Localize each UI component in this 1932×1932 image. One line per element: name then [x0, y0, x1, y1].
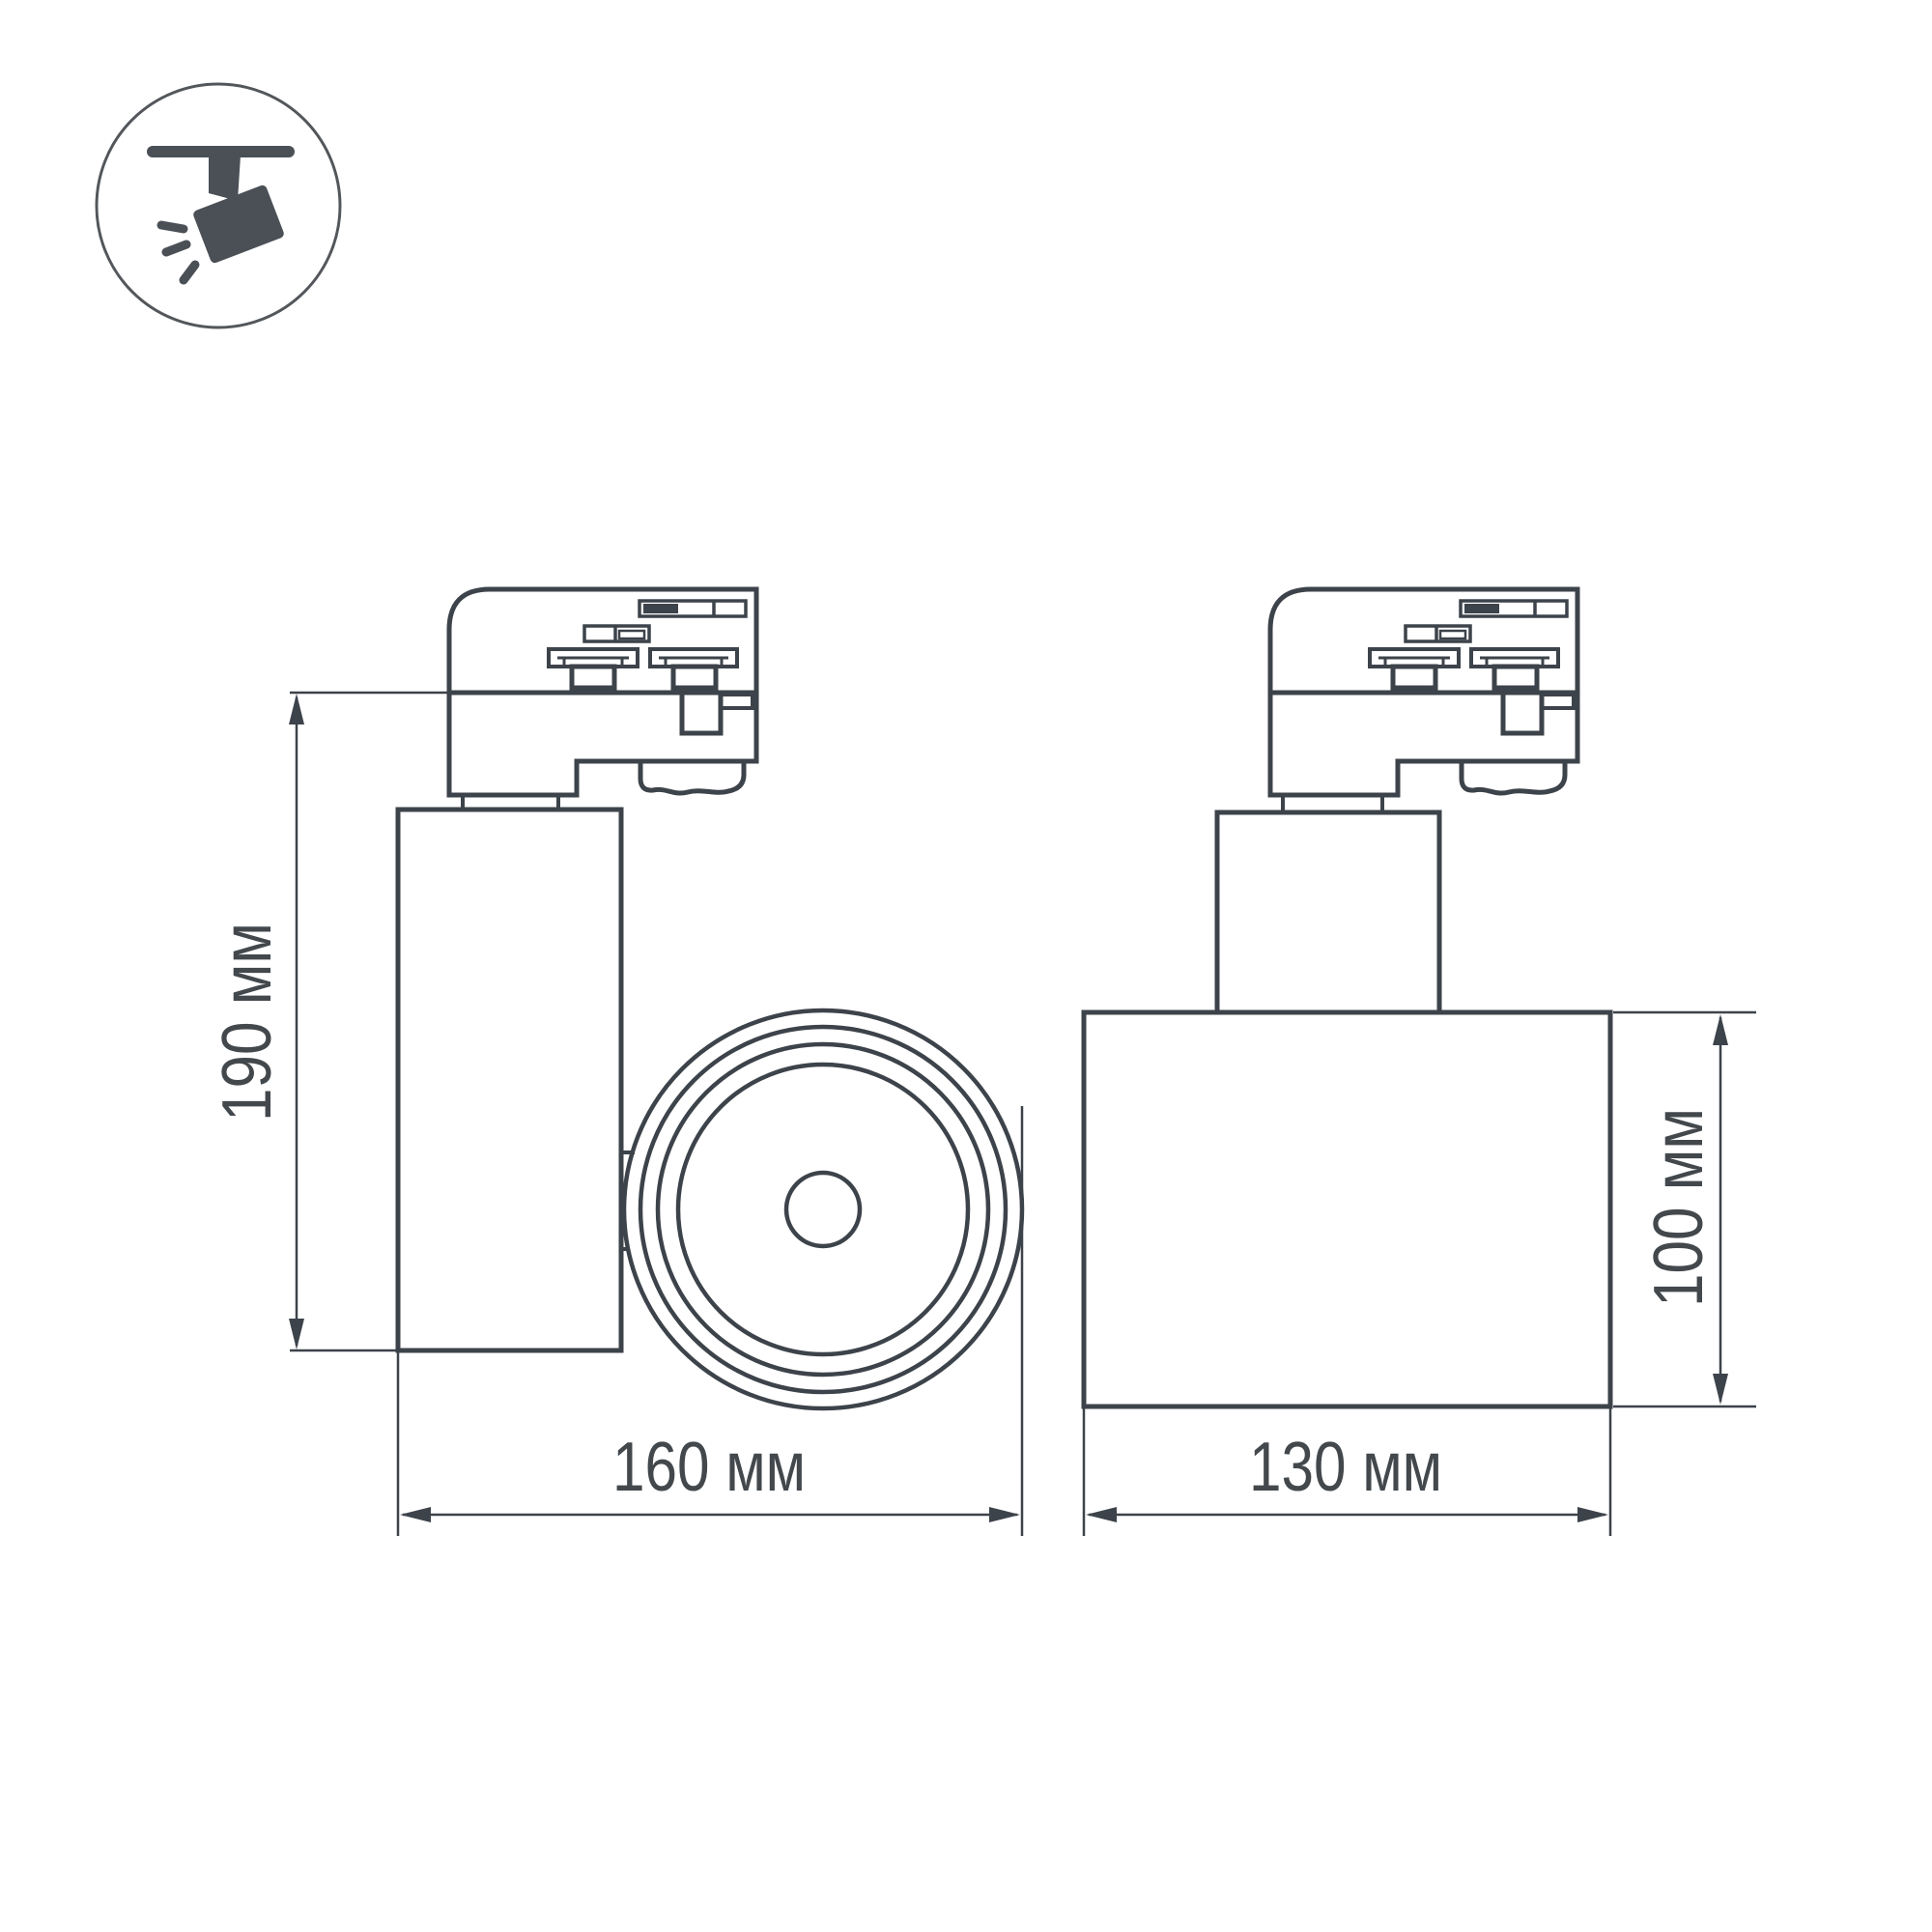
contact-block-b [1406, 626, 1470, 641]
t-contact-right [1471, 649, 1558, 688]
icon-stem [209, 156, 241, 201]
contact-block-a [639, 601, 746, 616]
dimension-height-190 [289, 693, 449, 1350]
t-contact-left [549, 649, 638, 688]
icon-light-rays [161, 225, 195, 280]
track-light-icon [97, 84, 340, 327]
body-width-label-130: 130 мм [1249, 1429, 1442, 1506]
lamp-body-side [1084, 1012, 1610, 1406]
t-contact-right [650, 649, 737, 688]
adapter-lower-body [449, 693, 756, 795]
led-center [786, 1173, 860, 1246]
contact-block-b [584, 626, 649, 641]
body-height-label-100: 100 мм [1640, 1108, 1718, 1307]
contact-block-a [1461, 601, 1567, 616]
front-view [398, 589, 1022, 1408]
width-label-160: 160 мм [612, 1429, 806, 1506]
cylinder-body [398, 810, 621, 1350]
adapter-notch [721, 695, 753, 708]
adapter-knob [1462, 761, 1565, 793]
dimension-lines [289, 693, 1756, 1536]
adapter-knob [640, 761, 744, 793]
t-contact-left [1370, 649, 1459, 688]
adapter-tab [1503, 693, 1542, 733]
icon-lamp-body [192, 184, 285, 264]
neck [1217, 812, 1439, 1012]
dimension-drawing: 190 мм 160 мм 100 мм 130 мм [0, 0, 1932, 1932]
adapter-tab [682, 693, 721, 733]
adapter-notch [1542, 695, 1574, 708]
height-label-190: 190 мм [209, 923, 286, 1122]
lamp-head-front [624, 1010, 1022, 1408]
adapter-lower-body [1270, 693, 1577, 795]
track-adapter-left [449, 589, 756, 809]
side-view [1084, 589, 1610, 1406]
track-adapter-right [1270, 589, 1577, 812]
